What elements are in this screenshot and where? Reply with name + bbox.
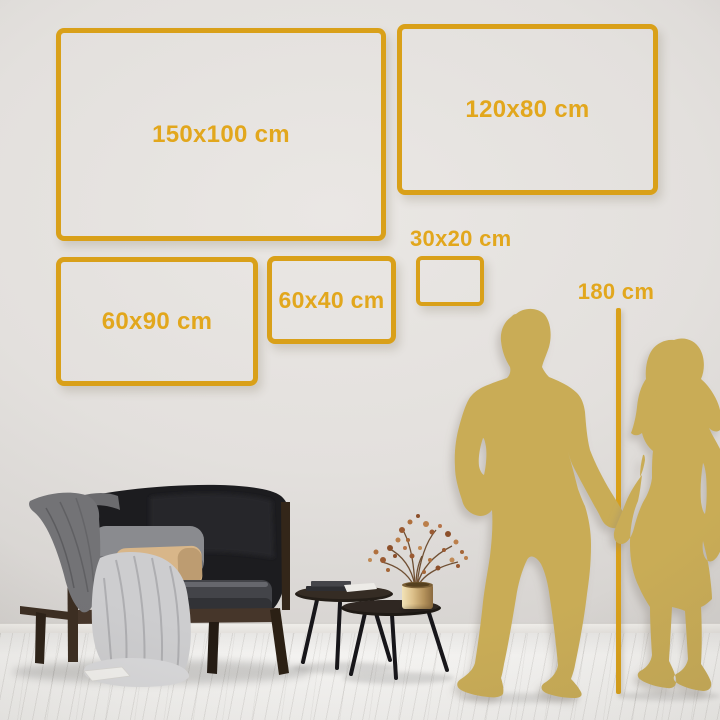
woman-silhouette: [614, 338, 720, 691]
man-silhouette: [455, 309, 625, 698]
room-illustration: [0, 0, 720, 720]
size-guide-scene: 150x100 cm 120x80 cm 30x20 cm 60x90 cm 6…: [0, 0, 720, 720]
sofa-illustration: [20, 485, 290, 687]
